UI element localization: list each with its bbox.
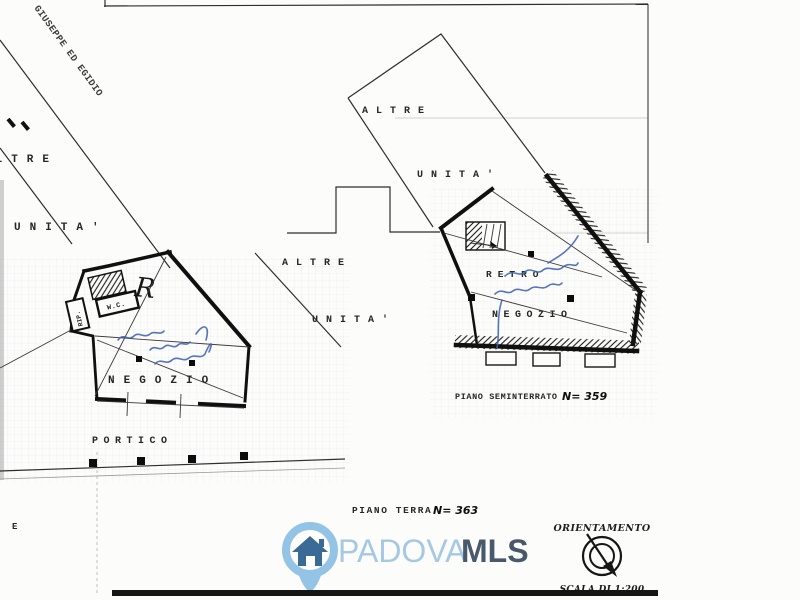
left-negozio-label: NEGOZIO bbox=[108, 375, 217, 387]
piano-terra-caption: PIANO TERRA N= 363 bbox=[352, 504, 479, 517]
seminterrato-caption: PIANO SEMINTERRATO N= 359 bbox=[455, 390, 608, 403]
handwritten-letter-r: R bbox=[132, 272, 156, 305]
map-pin-house-icon bbox=[286, 526, 334, 592]
portico-label: PORTICO bbox=[92, 436, 173, 447]
street-label: GIUSEPPE ED EGIDIO bbox=[32, 3, 105, 98]
right-unit-label-line1: ALTRE bbox=[362, 106, 432, 117]
orientation-title: ORIENTAMENTO bbox=[553, 523, 650, 534]
pillar-mark bbox=[189, 360, 195, 366]
light-wells bbox=[486, 352, 615, 367]
right-stairs bbox=[466, 222, 505, 250]
right-unit-label-line2: UNITA' bbox=[417, 169, 501, 181]
pillar-mark bbox=[567, 295, 574, 302]
left-unit-label-line2: UNITA' bbox=[14, 222, 108, 234]
compass-icon bbox=[583, 534, 621, 577]
floorplan-scan: GIUSEPPE ED EGIDIO ALTRE UNITA' W.C. bbox=[0, 0, 800, 600]
left-unit-label-line1: ALTRE bbox=[0, 154, 58, 166]
retro-label: RETRO bbox=[486, 269, 545, 280]
right-negozio-label: NEGOZIO bbox=[492, 310, 573, 321]
sheet-border-bar bbox=[112, 590, 658, 596]
terra-number: N= 363 bbox=[433, 504, 479, 517]
padovamls-logo: PADOVA MLS bbox=[286, 526, 529, 592]
stray-letter: E bbox=[12, 522, 18, 532]
floorplan-drawing: GIUSEPPE ED EGIDIO ALTRE UNITA' W.C. bbox=[0, 0, 800, 600]
middle-unit-label-line1: ALTRE bbox=[282, 258, 352, 269]
pillar-mark bbox=[468, 294, 475, 301]
seminterrato-label: PIANO SEMINTERRATO bbox=[455, 392, 558, 402]
orientation-legend: ORIENTAMENTO SCALA DI 1:200 bbox=[553, 523, 650, 595]
terra-label: PIANO TERRA bbox=[352, 505, 432, 516]
logo-text-mls: MLS bbox=[461, 533, 529, 569]
logo-text-padova: PADOVA bbox=[338, 533, 467, 569]
pillar-mark bbox=[136, 356, 142, 362]
middle-unit-label-line2: UNITA' bbox=[312, 314, 396, 326]
pillar-mark bbox=[528, 251, 534, 257]
seminterrato-number: N= 359 bbox=[562, 390, 608, 403]
